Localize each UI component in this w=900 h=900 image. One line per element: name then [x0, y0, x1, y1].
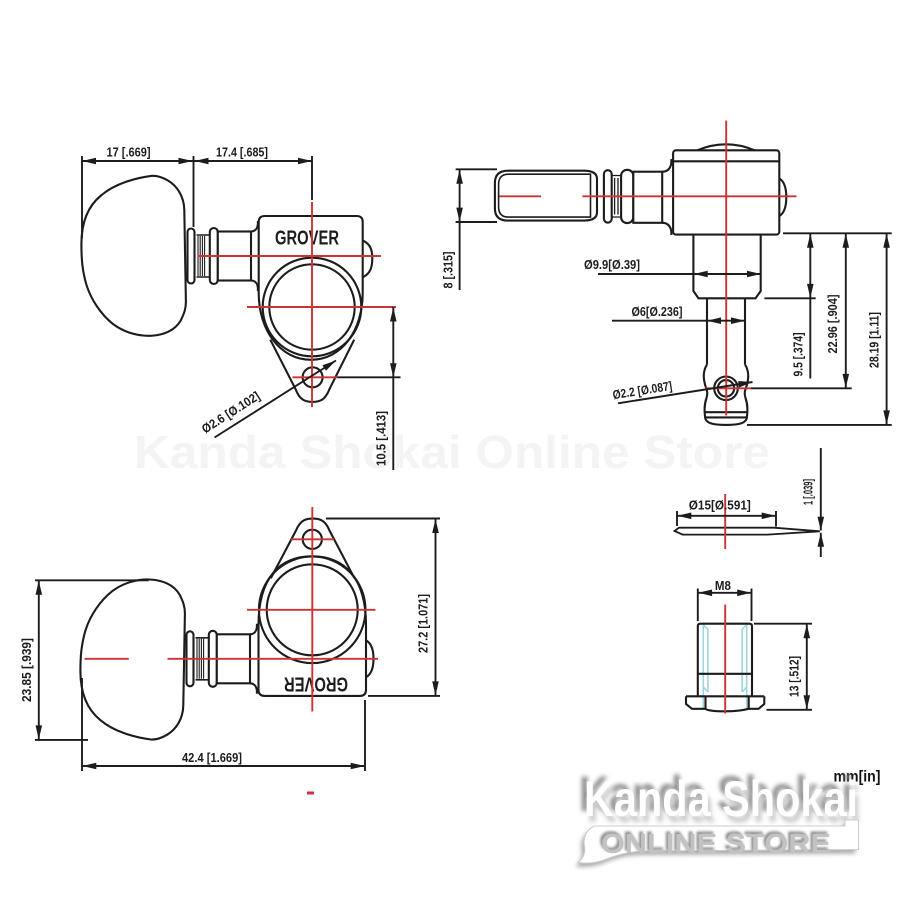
- svg-text:27.2 [1.071]: 27.2 [1.071]: [417, 594, 431, 653]
- svg-text:Ø6[Ø.236]: Ø6[Ø.236]: [632, 305, 683, 319]
- svg-text:Ø15[Ø.591]: Ø15[Ø.591]: [689, 499, 751, 513]
- svg-text:9.5 [.374]: 9.5 [.374]: [792, 333, 806, 377]
- svg-text:ONLINE STORE: ONLINE STORE: [601, 828, 831, 859]
- svg-text:Ø9.9[Ø.39]: Ø9.9[Ø.39]: [584, 258, 640, 272]
- svg-text:28.19 [1.11]: 28.19 [1.11]: [868, 312, 882, 368]
- svg-text:Kanda Shokai: Kanda Shokai: [584, 771, 858, 827]
- svg-text:GROVER: GROVER: [284, 673, 348, 696]
- svg-text:8 [.315]: 8 [.315]: [442, 252, 456, 289]
- svg-text:Kanda Shokai Online Store: Kanda Shokai Online Store: [134, 426, 770, 478]
- svg-text:17 [.669]: 17 [.669]: [107, 146, 151, 160]
- svg-text:23.85 [.939]: 23.85 [.939]: [20, 638, 34, 702]
- svg-text:GROVER: GROVER: [275, 226, 339, 249]
- svg-text:1 [.039]: 1 [.039]: [802, 479, 816, 505]
- svg-text:17.4 [.685]: 17.4 [.685]: [216, 146, 268, 160]
- svg-text:13 [.512]: 13 [.512]: [788, 656, 802, 697]
- svg-text:22.96 [.904]: 22.96 [.904]: [826, 295, 840, 354]
- svg-text:M8: M8: [715, 579, 731, 593]
- svg-text:42.4 [1.669]: 42.4 [1.669]: [182, 751, 242, 765]
- svg-text:10.5 [.413]: 10.5 [.413]: [375, 411, 389, 466]
